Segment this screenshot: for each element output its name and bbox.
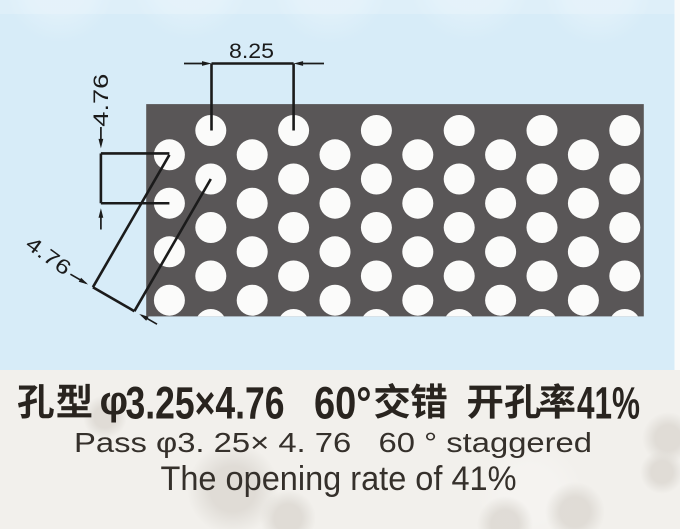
svg-text:The opening rate of 41%: The opening rate of 41% bbox=[161, 460, 517, 498]
svg-text:4.76: 4.76 bbox=[90, 74, 113, 127]
svg-text:60°: 60° bbox=[314, 378, 372, 429]
svg-text:Pass φ3. 25× 4. 76 60 ° stag: Pass φ3. 25× 4. 76 60 ° staggered bbox=[74, 427, 592, 458]
svg-text:3.25×4.76: 3.25×4.76 bbox=[126, 378, 285, 429]
svg-text:8.25: 8.25 bbox=[229, 40, 274, 63]
svg-text:φ: φ bbox=[100, 379, 129, 423]
svg-text:41%: 41% bbox=[577, 378, 640, 429]
